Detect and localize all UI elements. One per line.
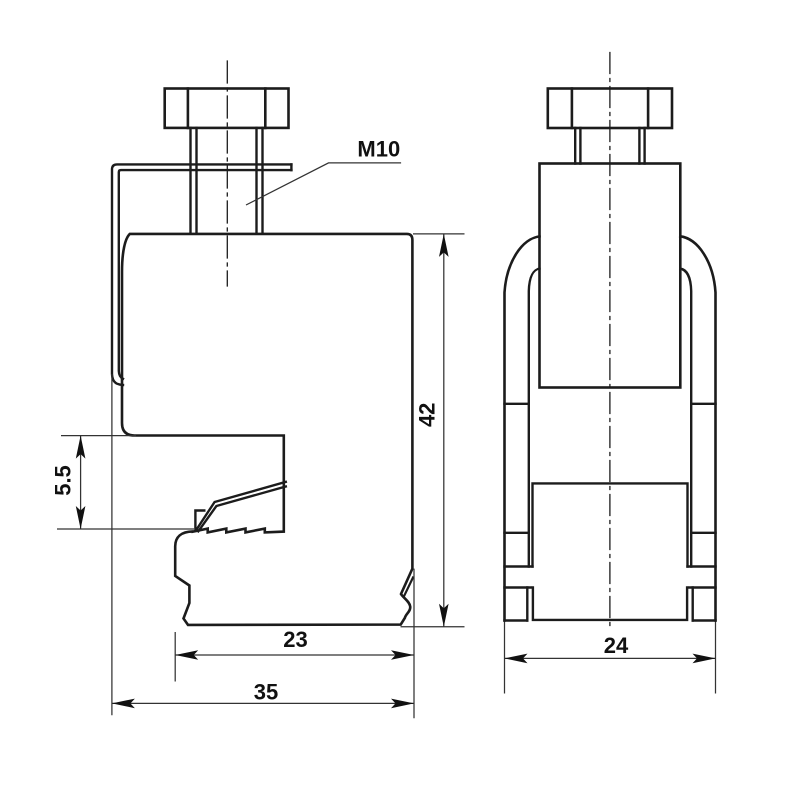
svg-text:M10: M10 (357, 137, 400, 162)
svg-text:42: 42 (414, 403, 439, 427)
svg-text:5.5: 5.5 (51, 465, 76, 496)
svg-text:24: 24 (604, 633, 629, 658)
svg-text:35: 35 (254, 680, 278, 705)
svg-text:23: 23 (283, 627, 307, 652)
